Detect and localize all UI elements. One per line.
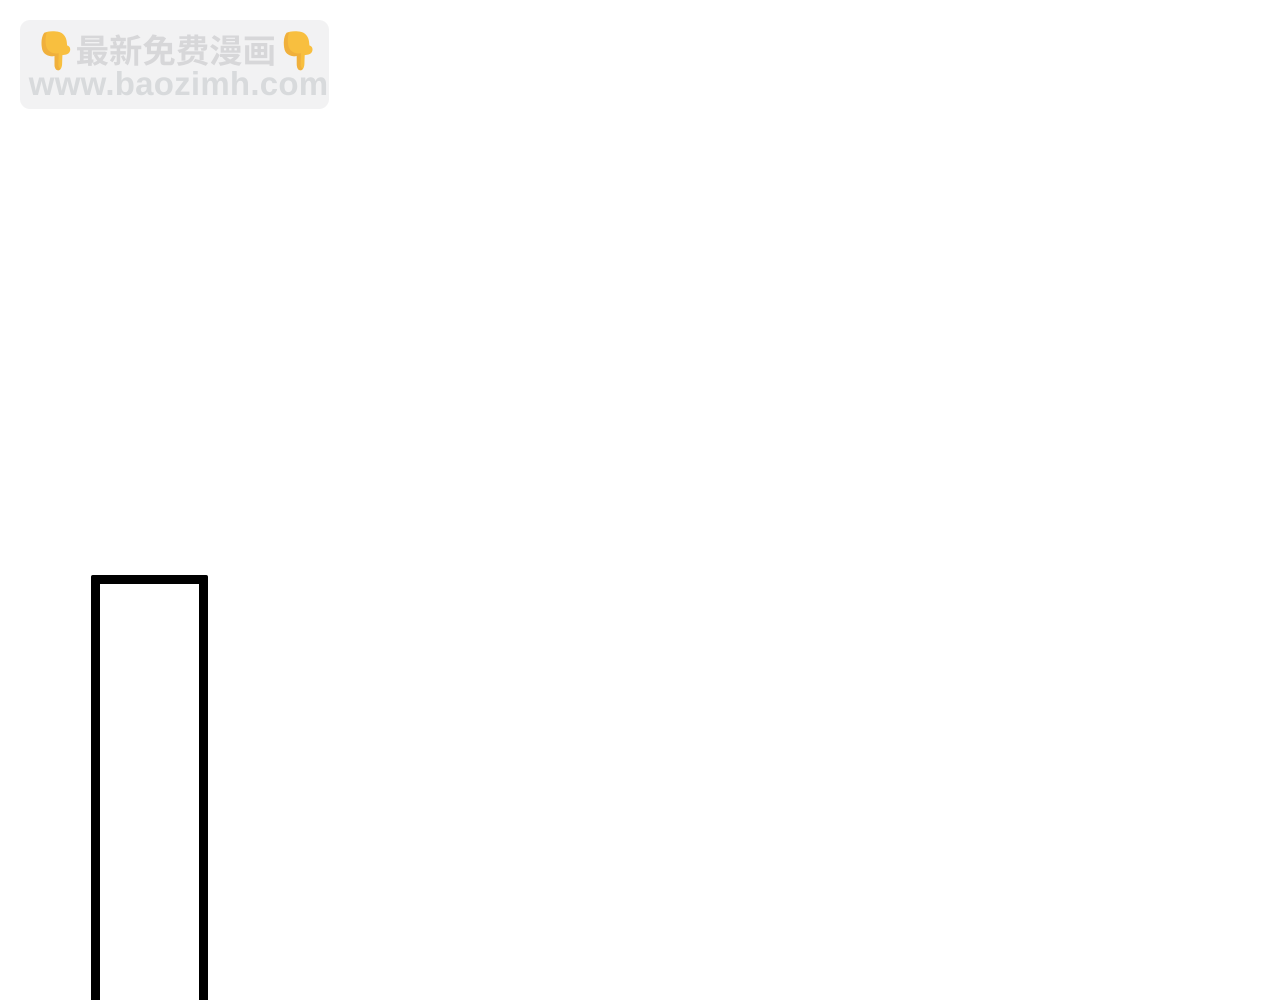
svg-text:www.baozimh.com: www.baozimh.com xyxy=(27,65,328,102)
